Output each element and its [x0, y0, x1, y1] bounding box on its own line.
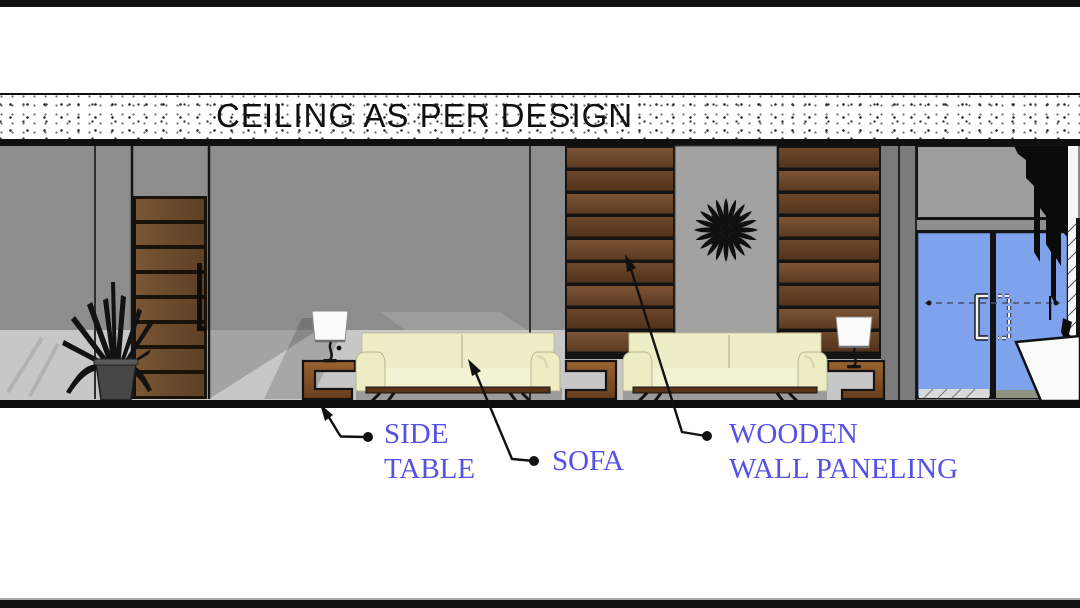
label-side-table-line1: SIDE	[384, 417, 475, 452]
label-side-table: SIDE TABLE	[384, 417, 475, 487]
plant-pot	[96, 363, 136, 400]
label-wall-paneling-line1: WOODEN	[729, 417, 958, 452]
door-mullion	[990, 232, 996, 398]
wooden-wall-paneling-left	[565, 146, 675, 359]
label-side-table-line2: TABLE	[384, 452, 475, 487]
floor-line	[0, 400, 1080, 408]
label-wall-paneling-line2: WALL PANELING	[729, 452, 958, 487]
elevation-svg	[0, 0, 1080, 608]
door-handle	[197, 263, 202, 329]
bottom-border-bar	[0, 600, 1080, 608]
elevation-drawing: CEILING AS PER DESIGN	[0, 0, 1080, 608]
sofa-1	[356, 333, 560, 401]
label-wall-paneling: WOODEN WALL PANELING	[729, 417, 958, 487]
label-sofa: SOFA	[552, 444, 624, 479]
wooden-door	[133, 196, 207, 399]
label-sofa-line1: SOFA	[552, 444, 624, 479]
